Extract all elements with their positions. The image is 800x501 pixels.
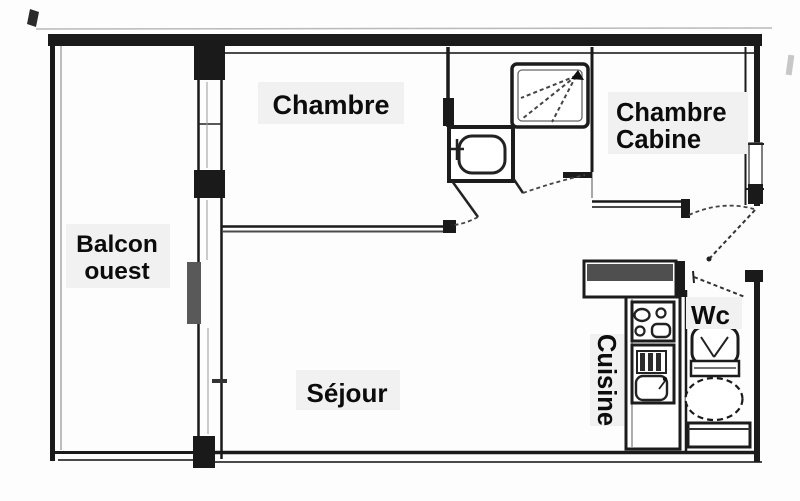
kitchen-sink-icon (632, 345, 674, 403)
wall-left (50, 34, 55, 461)
kitchen-counter-top (587, 264, 673, 281)
window-right-wall (749, 143, 762, 190)
washbasin-closet (449, 127, 513, 181)
floor-plan-svg: Chambre Chambre Cabine Balcon ouest Séjo… (0, 0, 800, 501)
window-latch-tick (212, 379, 227, 383)
label-cabin-line1: Chambre (616, 99, 727, 127)
wall-block-mid (194, 170, 225, 198)
wc-shelf-outline (688, 423, 750, 447)
label-balcony-line2: ouest (84, 258, 149, 285)
label-kitchen: Cuisine (592, 334, 620, 426)
kitchen-counter-end-post (676, 261, 685, 297)
wall-top (48, 34, 762, 46)
wall-bedroom-right-post (443, 98, 454, 126)
wall-stub-entry (745, 270, 763, 282)
stove-icon (632, 302, 674, 341)
toilet-icon (691, 327, 739, 376)
floor-plan-scan: Chambre Chambre Cabine Balcon ouest Séjo… (0, 0, 800, 501)
label-bedroom: Chambre (272, 90, 389, 120)
scan-hairline-top (36, 28, 772, 29)
label-living-room: Séjour (307, 378, 388, 408)
wall-bedroom-bottom-post (443, 220, 456, 233)
label-wc: Wc (691, 300, 730, 330)
sliding-door-panel (187, 262, 201, 324)
shower-fixture (512, 64, 588, 127)
wall-pillar-bottom (193, 436, 215, 468)
sink-drainer-bar-2 (648, 353, 653, 371)
label-cabin-line2: Cabine (616, 126, 701, 154)
sink-drainer-bar-3 (656, 353, 661, 371)
sink-drainer-bar-1 (640, 353, 645, 371)
wc-shelf (688, 423, 750, 447)
entry-door-hinge (707, 257, 712, 262)
entry-door-post (748, 184, 763, 204)
basin-oval-icon (686, 378, 743, 420)
sink-faucet-dot (663, 377, 667, 381)
wall-cabin-bottom-post (681, 199, 690, 218)
toilet-bowl (692, 327, 738, 364)
wall-block-top (194, 36, 225, 80)
label-balcony-line1: Balcon (76, 231, 158, 258)
wc-door-jamb (693, 271, 694, 283)
wall-right-lower (754, 270, 760, 462)
